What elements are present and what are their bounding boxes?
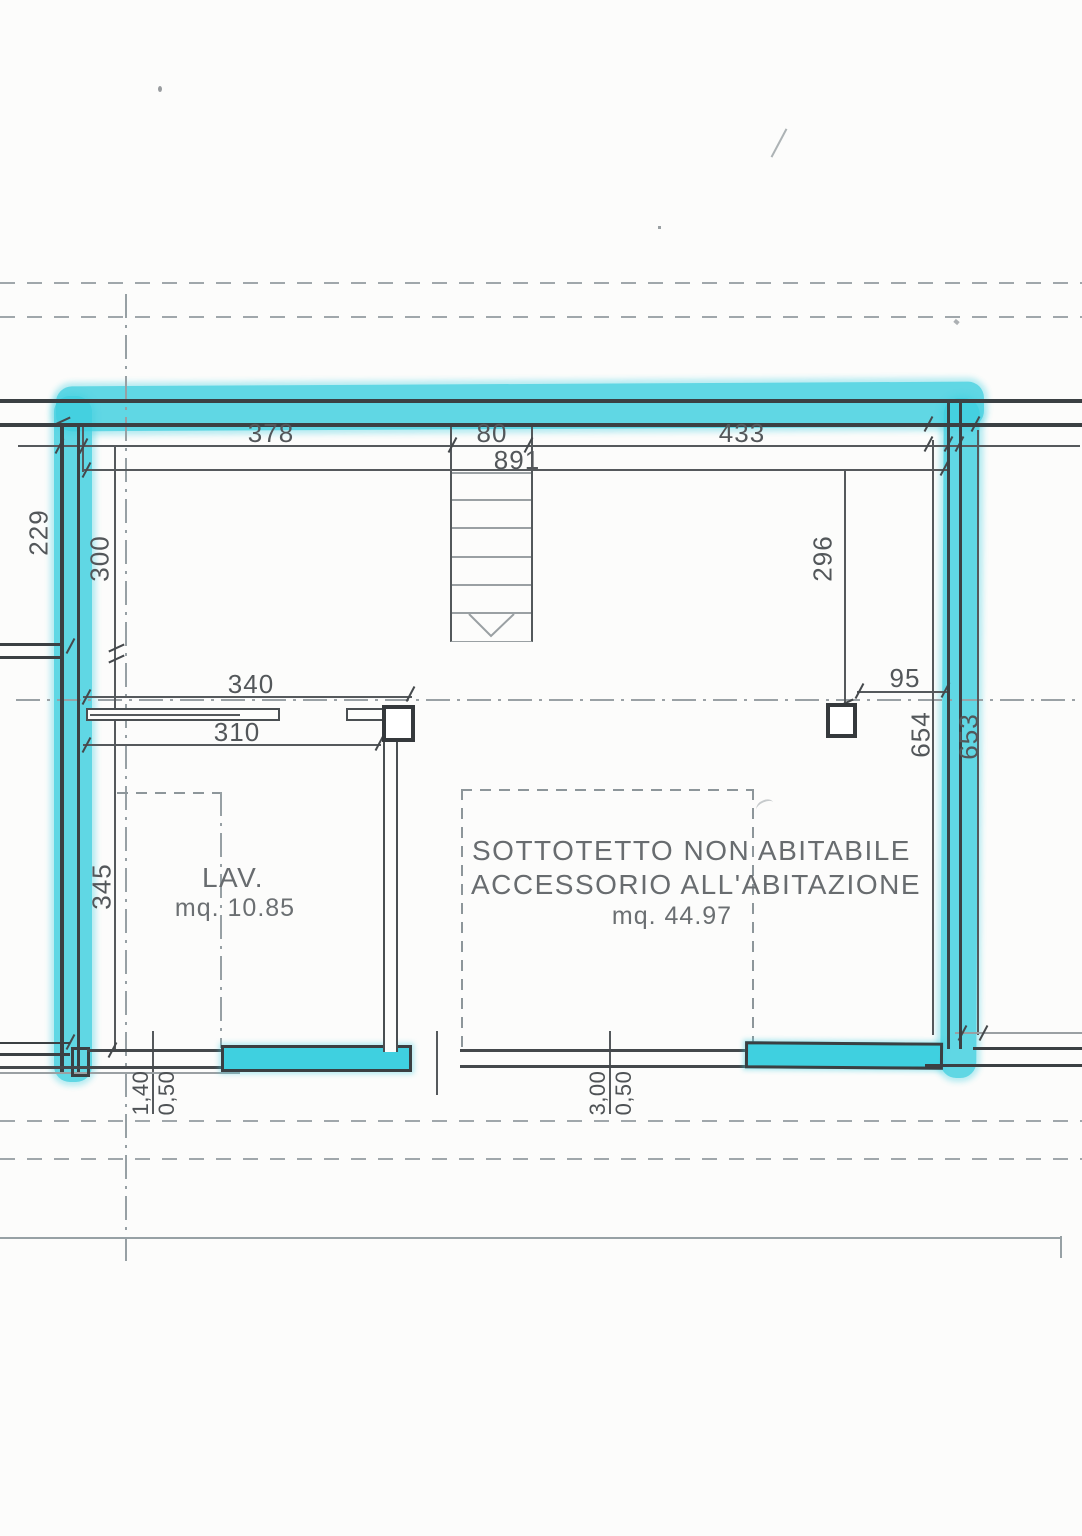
bottom-parapet-highlighted-right <box>745 1041 943 1069</box>
scan-squiggle <box>754 797 775 815</box>
stair-direction-chevron-icon <box>452 610 531 640</box>
bottom-wall-right-ext-top <box>973 1047 1082 1050</box>
floor-plan: 378 80 433 891 229 300 296 95 654 653 34… <box>0 0 1082 1536</box>
dim-310: 310 <box>197 717 277 748</box>
scan-slash-mark <box>771 128 788 157</box>
dim-tick <box>108 655 124 664</box>
room-sottotetto-line2: ACCESSORIO ALL'ABITAZIONE <box>471 869 871 901</box>
dim-300: 300 <box>85 519 116 599</box>
bottom-sill-mid-top <box>460 1049 748 1052</box>
left-wall-outer-line <box>60 425 64 1072</box>
dim-654: 654 <box>906 695 937 775</box>
bottom-wall-right-ext-bottom <box>925 1064 1082 1067</box>
pillar-right <box>826 703 857 738</box>
dim-window-mid-sill: 0,50 <box>611 1058 637 1128</box>
sill-line-bottom-left <box>0 1072 240 1074</box>
top-wall-inner-line <box>0 423 1082 427</box>
neighbor-wall-stub-lower <box>0 656 62 659</box>
dim-433: 433 <box>702 418 782 449</box>
room-sottotetto-area: mq. 44.97 <box>472 902 872 931</box>
stair-tread <box>452 584 531 586</box>
right-wall-inner-line <box>947 401 950 1049</box>
scan-speck <box>658 226 661 229</box>
boundary-dashed-line-top-1 <box>0 282 1082 284</box>
dim-345: 345 <box>87 847 118 927</box>
opening-axis-mark <box>436 1031 438 1095</box>
stair-tread <box>452 499 531 501</box>
dim-window-left-sill: 0,50 <box>154 1058 180 1128</box>
partition-wall-short <box>346 708 384 721</box>
axis-centerline-vertical <box>125 294 127 1262</box>
page-fold-line <box>0 1237 1062 1239</box>
sottotetto-dashed-top <box>461 789 753 791</box>
dim-window-mid-height: 3,00 <box>585 1058 611 1128</box>
dim-95: 95 <box>875 663 935 694</box>
dim-653: 653 <box>954 697 985 777</box>
room-sottotetto-line1: SOTTOTETTO NON ABITABILE <box>472 835 872 867</box>
top-wall-outer-line <box>0 399 1082 403</box>
room-lav-name: LAV. <box>153 862 313 894</box>
dim-296: 296 <box>808 519 839 599</box>
neighbor-wall-stub-upper <box>0 643 62 646</box>
dim-891: 891 <box>477 445 557 476</box>
dim-ext-296 <box>844 470 846 707</box>
pillar-left <box>382 705 415 742</box>
page-fold-edge <box>1060 1236 1062 1258</box>
room-lav-area: mq. 10.85 <box>135 894 335 923</box>
boundary-dashed-line-bottom-2 <box>0 1158 1082 1160</box>
dim-378: 378 <box>231 418 311 449</box>
stair-tread <box>452 556 531 558</box>
left-wall-end-cap <box>71 1047 90 1077</box>
dim-340: 340 <box>211 669 291 700</box>
sottotetto-dashed-left <box>461 789 463 1048</box>
neighbor-stub-bottom <box>0 1053 70 1056</box>
sill-line-bottom-right <box>955 1032 1082 1034</box>
dim-229: 229 <box>24 493 55 573</box>
lav-dashed-top <box>117 792 221 794</box>
dim-tick <box>108 644 124 653</box>
dim-window-left-height: 1,40 <box>128 1058 154 1128</box>
scan-speck <box>158 86 162 92</box>
partition-wall-inner-line <box>90 714 240 716</box>
neighbor-stub-bottom-thin <box>0 1042 70 1044</box>
bottom-sill-left-bottom <box>0 1066 222 1069</box>
stair-tread <box>452 527 531 529</box>
bottom-sill-left-top <box>87 1049 222 1052</box>
partition-wall-vertical <box>383 740 398 1052</box>
scan-speck <box>953 319 959 325</box>
boundary-dashed-line-top-2 <box>0 316 1082 318</box>
left-wall-inner-line <box>77 425 80 1072</box>
